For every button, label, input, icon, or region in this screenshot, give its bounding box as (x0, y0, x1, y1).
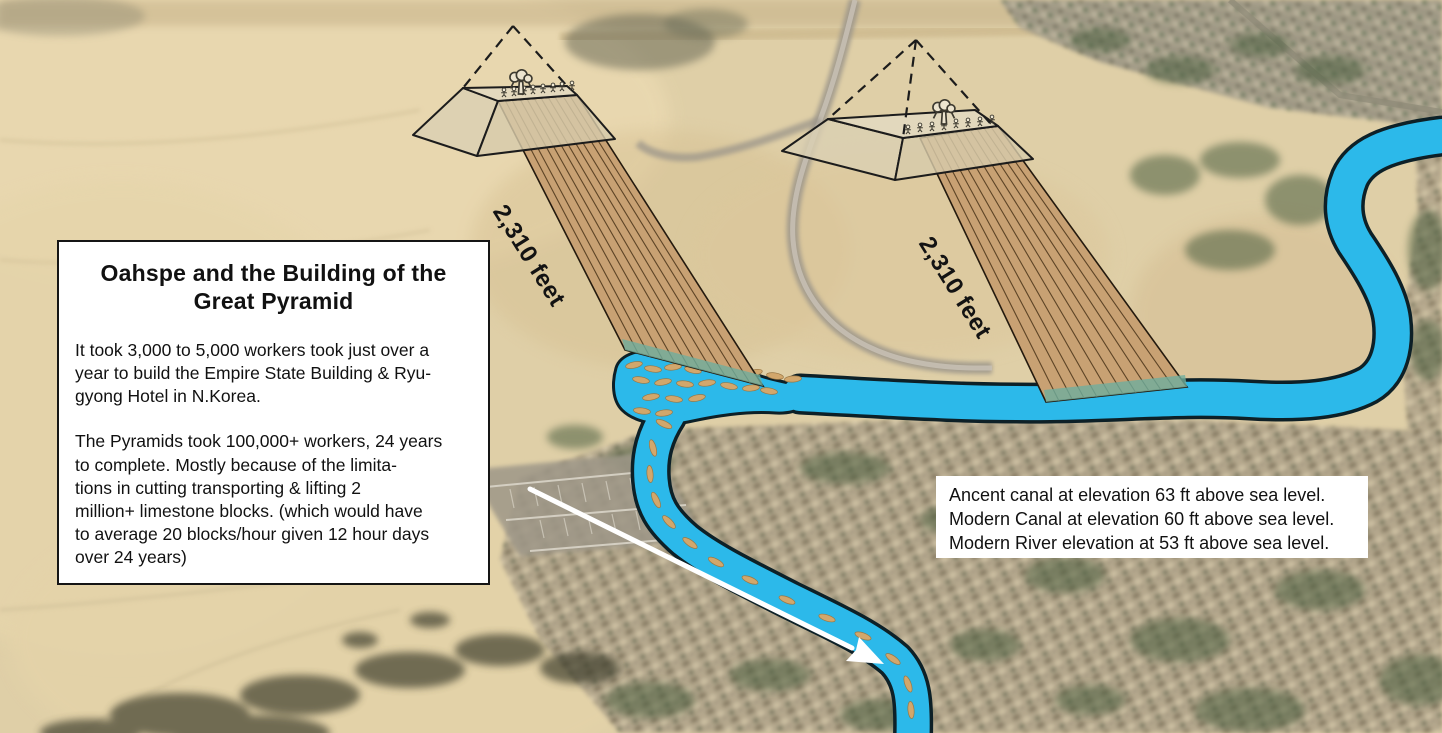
title-box-paragraph-2: The Pyramids took 100,000+ workers, 24 y… (75, 430, 472, 569)
elevation-line-modern-river: Modern River elevation at 53 ft above se… (949, 532, 1355, 556)
elevation-note-box: Ancent canal at elevation 63 ft above se… (936, 476, 1368, 558)
elevation-line-ancient-canal: Ancent canal at elevation 63 ft above se… (949, 484, 1355, 508)
title-box-paragraph-1: It took 3,000 to 5,000 workers took just… (75, 339, 472, 408)
title-box: Oahspe and the Building of the Great Pyr… (57, 240, 490, 585)
annotated-satellite-map: 2,310 feet 2,310 feet Oahspe and the Bui… (0, 0, 1442, 733)
title-box-heading: Oahspe and the Building of the Great Pyr… (83, 260, 464, 315)
elevation-line-modern-canal: Modern Canal at elevation 60 ft above se… (949, 508, 1355, 532)
